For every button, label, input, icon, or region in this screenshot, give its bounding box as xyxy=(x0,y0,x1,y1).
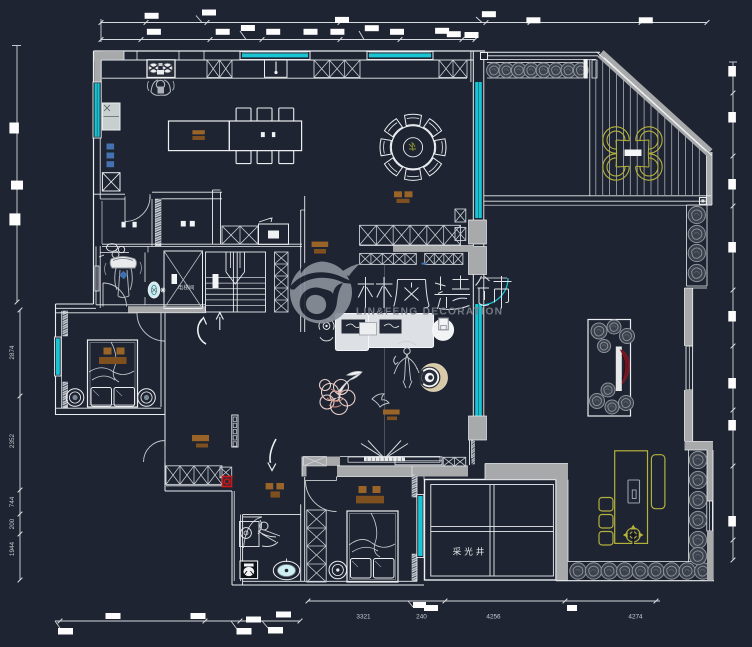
svg-text:2352: 2352 xyxy=(9,433,16,448)
svg-text:LIN&FENG DECORATION: LIN&FENG DECORATION xyxy=(356,307,503,318)
svg-text:4256: 4256 xyxy=(486,614,501,621)
svg-text:2874: 2874 xyxy=(9,345,16,360)
svg-text:采光井: 采光井 xyxy=(453,546,488,557)
svg-text:744: 744 xyxy=(9,496,16,507)
svg-text:240: 240 xyxy=(416,614,427,621)
svg-text:4274: 4274 xyxy=(628,614,643,621)
svg-text:200: 200 xyxy=(9,518,16,529)
svg-text:3321: 3321 xyxy=(356,614,371,621)
svg-text:电梯间: 电梯间 xyxy=(178,284,195,292)
svg-text:1944: 1944 xyxy=(9,541,16,556)
